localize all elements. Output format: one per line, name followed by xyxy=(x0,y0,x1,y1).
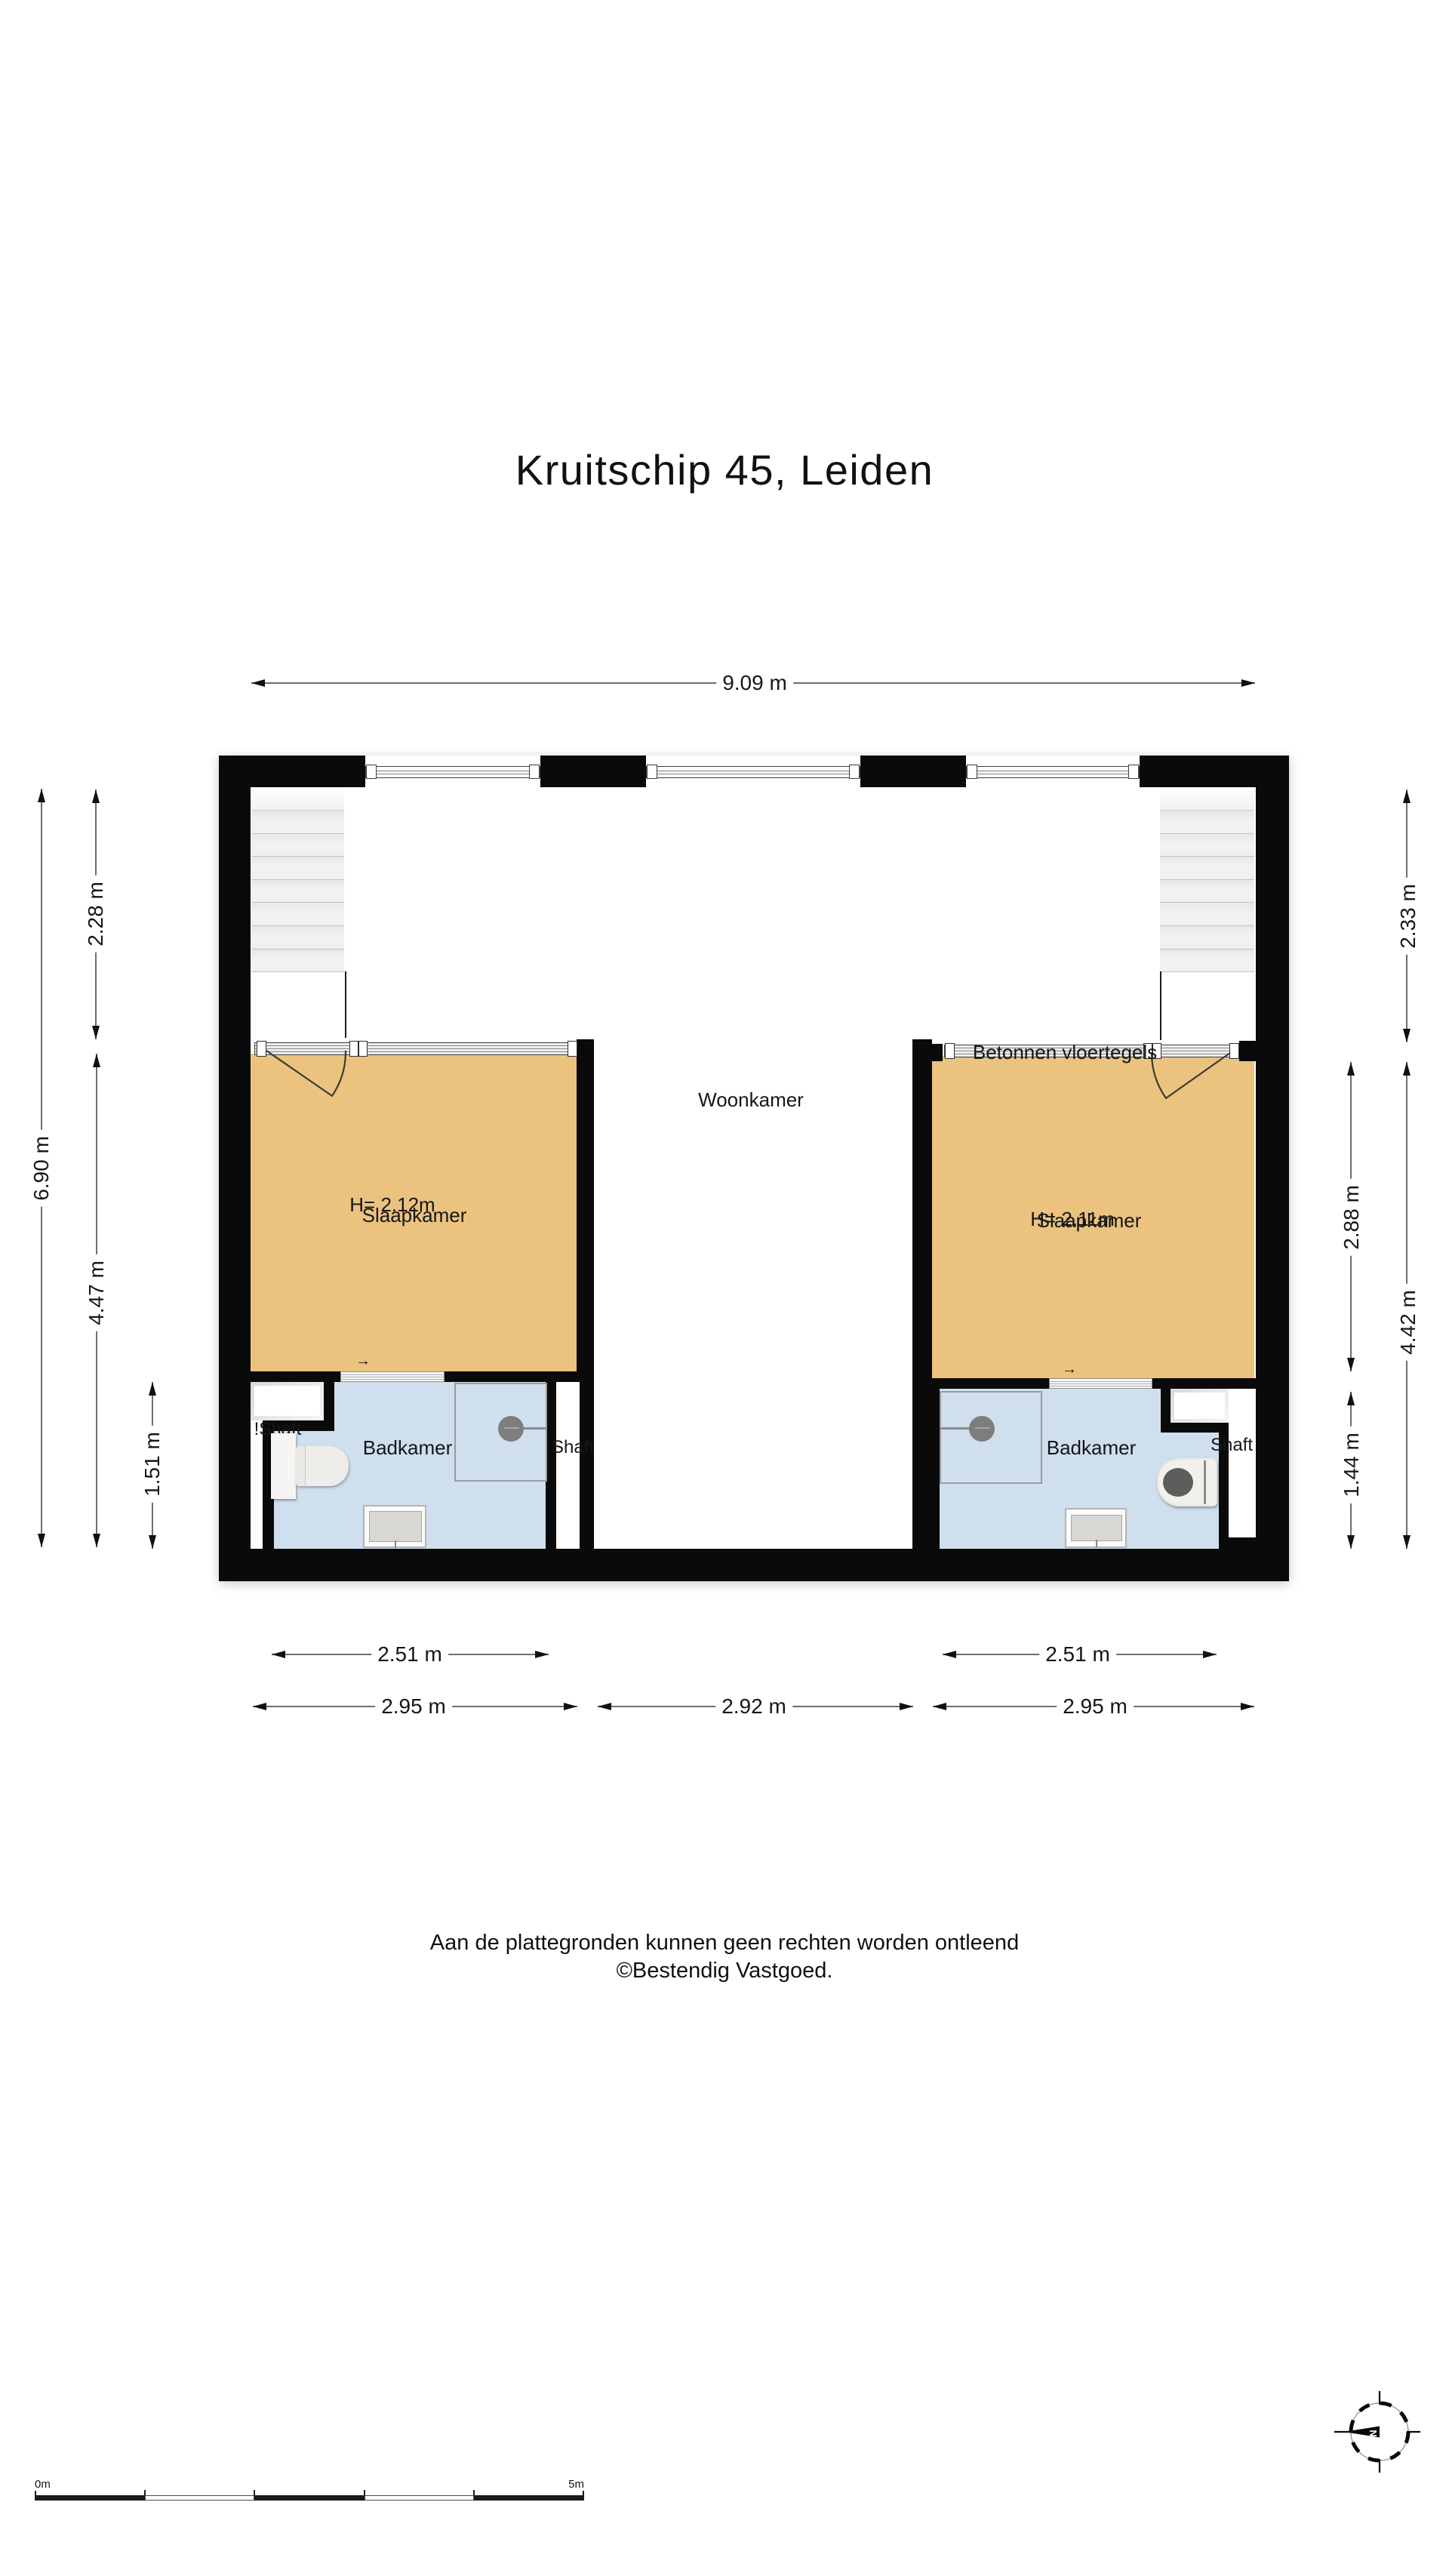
svg-text:N: N xyxy=(1367,2430,1379,2436)
